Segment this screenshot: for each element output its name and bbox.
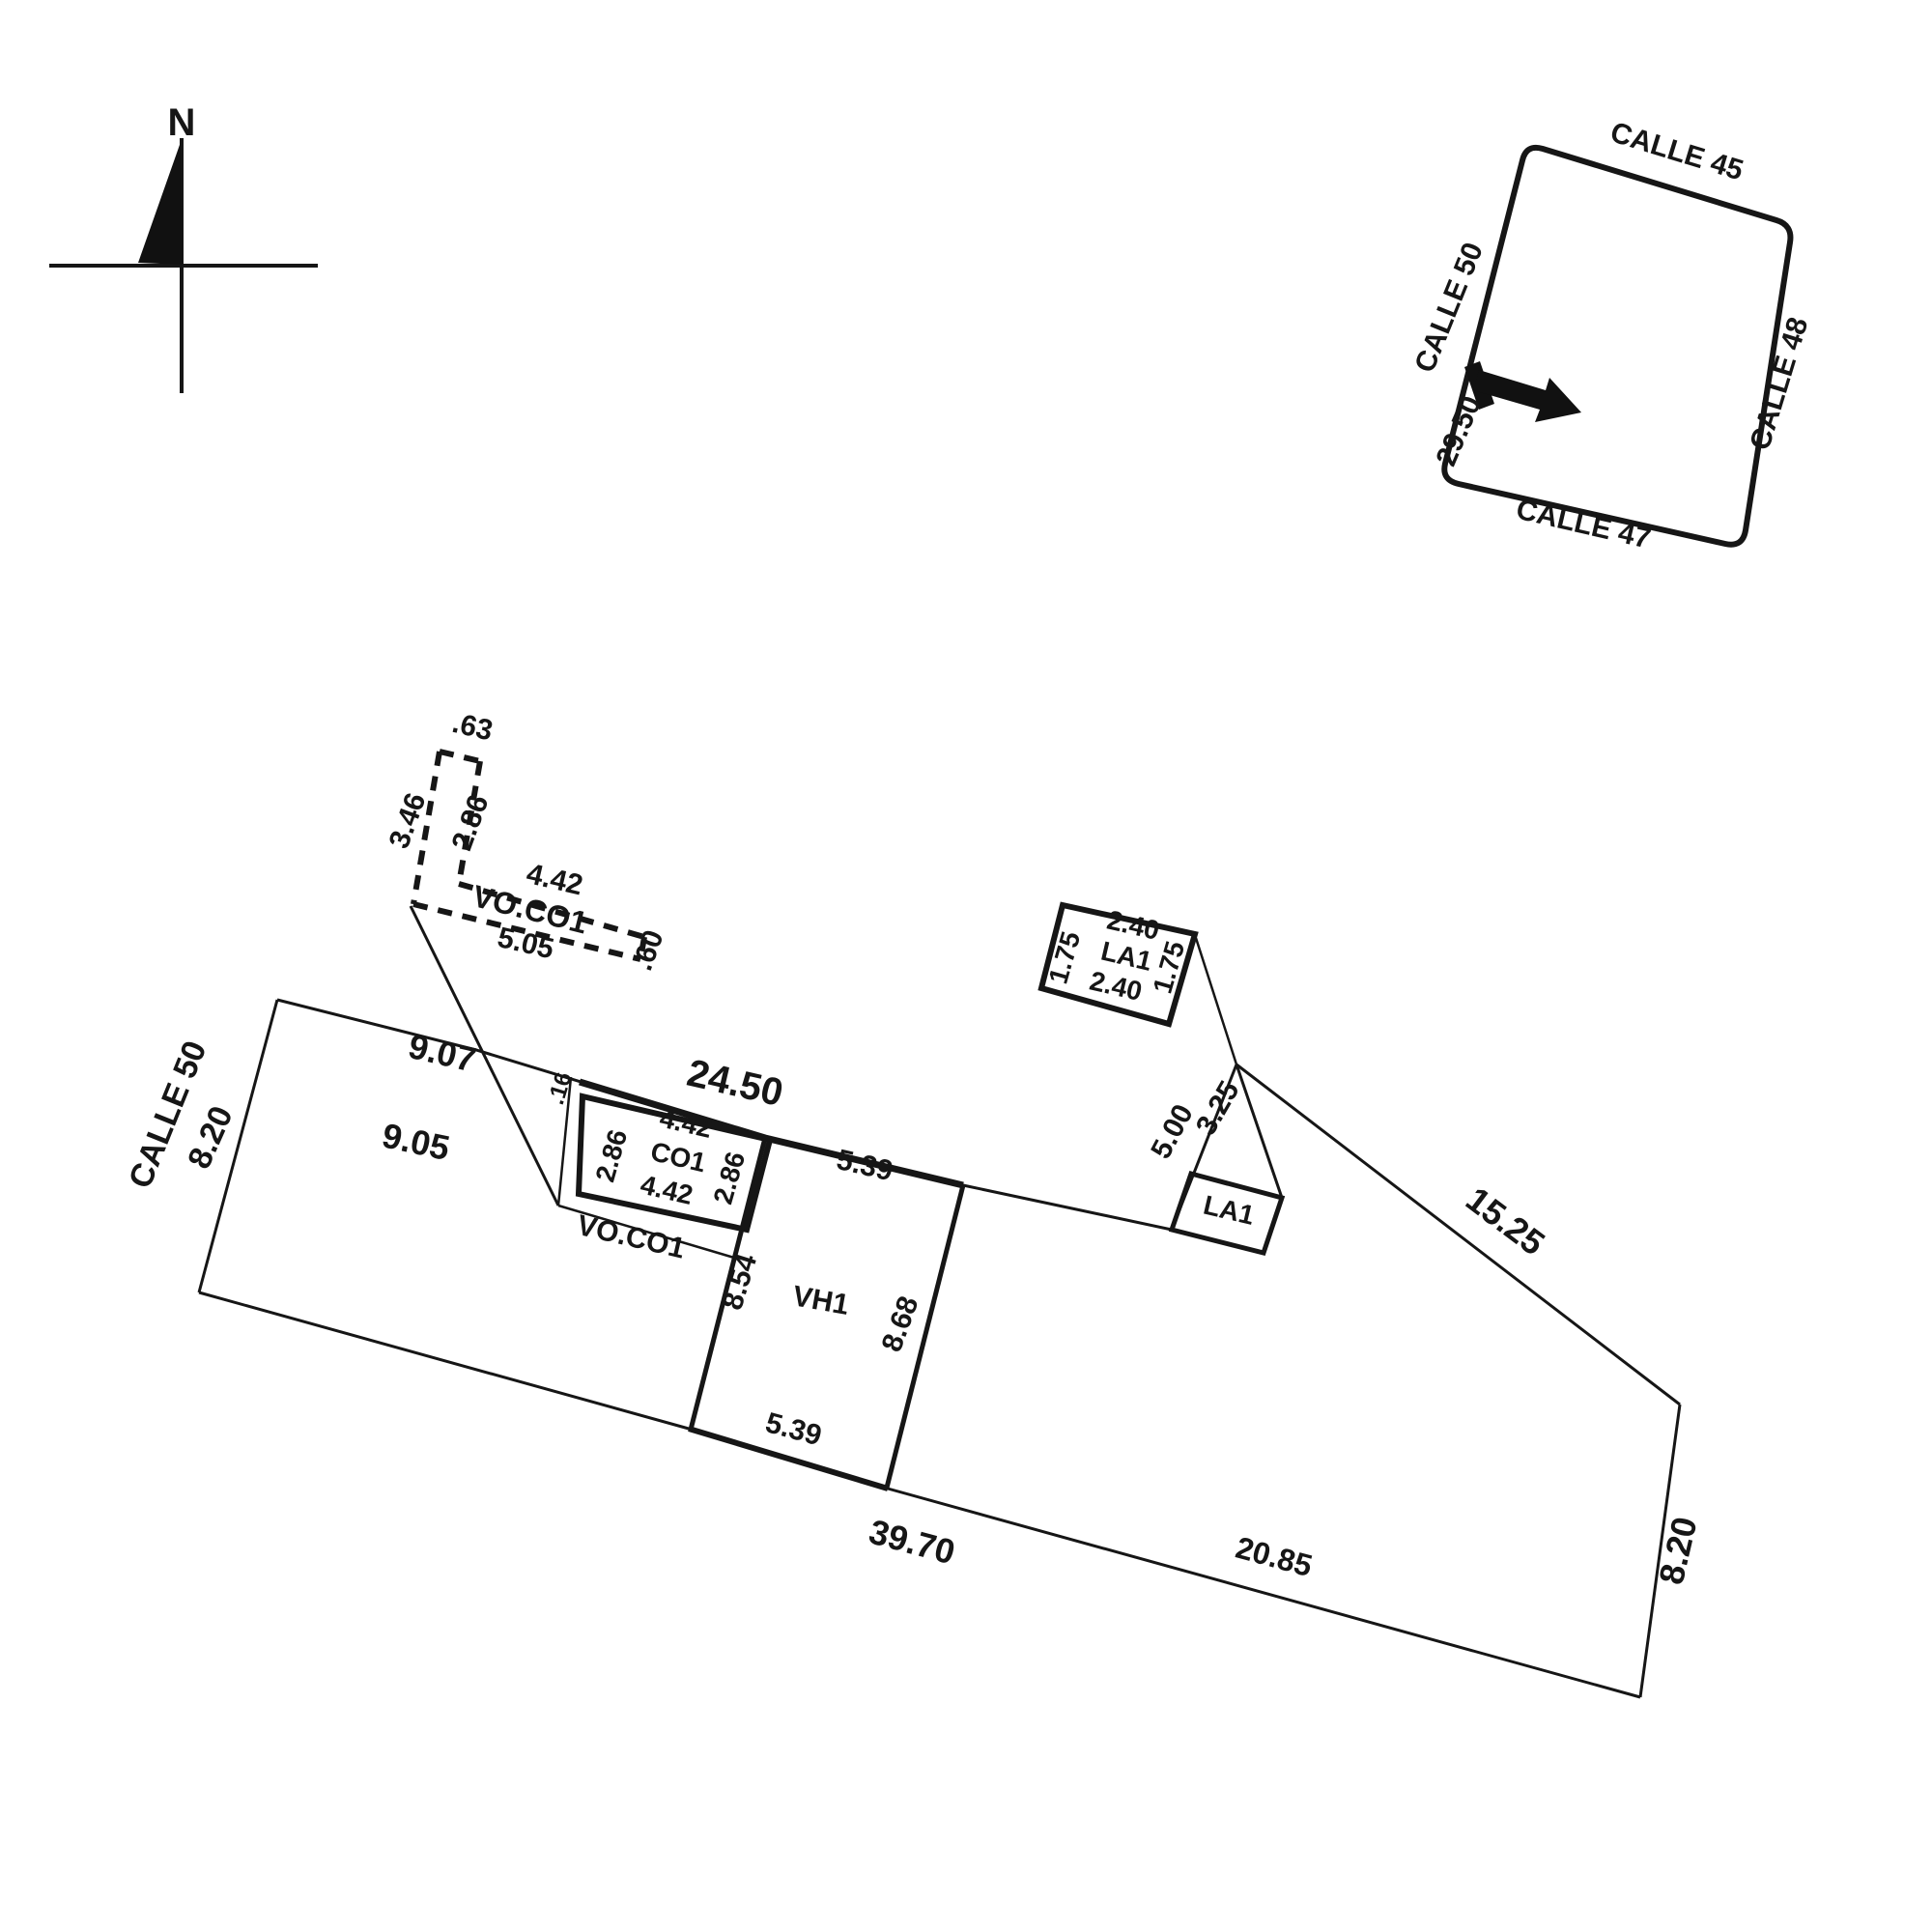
north-needle <box>138 142 183 265</box>
dim-500: 5.00 <box>1145 1099 1200 1164</box>
dim-right-820: 8.20 <box>1651 1513 1705 1588</box>
dim-907: 9.07 <box>405 1026 480 1080</box>
dim-3970: 39.70 <box>865 1511 959 1572</box>
dashed-top-cap <box>440 752 480 761</box>
dim-co1-bottom: 4.42 <box>638 1170 696 1210</box>
dim-vh1-right: 8.68 <box>876 1292 925 1356</box>
dim-dash-63: .63 <box>449 707 496 748</box>
north-label: N <box>168 101 196 144</box>
vh1-labels: 5.39 8.54 VH1 8.68 5.39 <box>717 1144 925 1452</box>
dim-la1-left: 1.75 <box>1042 928 1086 987</box>
dim-2085: 20.85 <box>1233 1530 1317 1583</box>
dim-325: 3.25 <box>1190 1076 1246 1141</box>
la1-plan-name: LA1 <box>1201 1190 1258 1231</box>
dim-co1-offset: .16 <box>543 1069 578 1108</box>
plan-drawing: N CALLE 45 CALLE 50 CALLE 48 CALLE 47 29… <box>0 0 1932 1930</box>
dim-905: 9.05 <box>379 1115 453 1168</box>
dim-left-820: 8.20 <box>181 1101 241 1175</box>
apex-to-la1-line <box>1236 1064 1282 1198</box>
dim-2450: 24.50 <box>683 1052 786 1115</box>
la1-leader-line <box>1196 938 1236 1064</box>
dim-vh1-left: 8.54 <box>717 1250 764 1314</box>
dim-co1-top: 4.42 <box>657 1103 715 1144</box>
dim-vh1-top: 5.39 <box>834 1144 895 1187</box>
survey-plan-page: N CALLE 45 CALLE 50 CALLE 48 CALLE 47 29… <box>0 0 1932 1930</box>
parcel-boundary <box>199 906 1680 1697</box>
boundary-right-upper <box>1236 1064 1680 1405</box>
vh1-name: VH1 <box>790 1280 851 1321</box>
dim-co1-right: 2.86 <box>707 1149 751 1207</box>
dim-co1-left: 2.86 <box>589 1126 633 1185</box>
dim-dash-286: 2.86 <box>446 791 496 855</box>
dim-dash-346: 3.46 <box>384 789 433 853</box>
dim-vh1-bottom: 5.39 <box>762 1406 825 1452</box>
dim-1525: 15.25 <box>1459 1179 1552 1263</box>
location-map: CALLE 45 CALLE 50 CALLE 48 CALLE 47 29.5… <box>1408 116 1814 554</box>
block-outline <box>1444 148 1790 545</box>
porch-name: VO.CO1 <box>574 1209 688 1265</box>
north-arrow-icon: N <box>49 101 318 393</box>
